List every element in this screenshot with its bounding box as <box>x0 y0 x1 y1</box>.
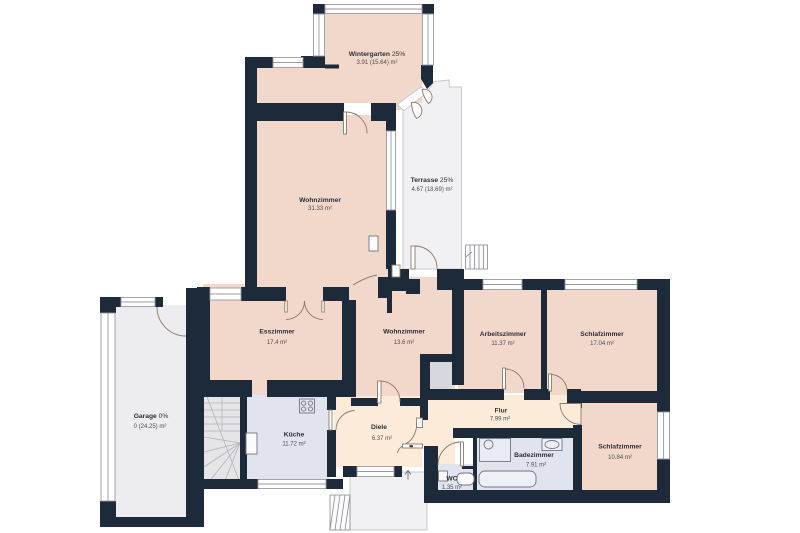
svg-text:Schlafzimmer: Schlafzimmer <box>580 331 624 338</box>
svg-text:Esszimmer: Esszimmer <box>259 329 295 336</box>
svg-text:WC: WC <box>446 476 457 483</box>
svg-text:11.72 m²: 11.72 m² <box>282 442 305 448</box>
svg-text:Terrasse 25%: Terrasse 25% <box>411 177 454 184</box>
svg-text:13.6 m²: 13.6 m² <box>394 340 414 346</box>
svg-text:Wintergarten 25%: Wintergarten 25% <box>349 51 405 58</box>
svg-text:Garage 0%: Garage 0% <box>134 413 169 420</box>
svg-text:Wohnzimmer: Wohnzimmer <box>299 197 341 204</box>
svg-text:Küche: Küche <box>284 432 305 439</box>
svg-text:7.99 m²: 7.99 m² <box>490 417 510 423</box>
svg-text:1.35 m²: 1.35 m² <box>442 485 462 491</box>
svg-text:Badezimmer: Badezimmer <box>514 452 554 459</box>
svg-text:11.37 m²: 11.37 m² <box>491 341 514 347</box>
svg-text:31.33 m²: 31.33 m² <box>308 206 332 212</box>
svg-text:3.91 (15.64) m²: 3.91 (15.64) m² <box>356 60 397 66</box>
svg-text:7.91 m²: 7.91 m² <box>526 463 546 469</box>
svg-text:17.04 m²: 17.04 m² <box>590 341 614 347</box>
svg-text:10.84 m²: 10.84 m² <box>608 455 632 461</box>
svg-text:Flur: Flur <box>495 408 508 415</box>
svg-text:4.67 (18.69) m²: 4.67 (18.69) m² <box>411 187 452 193</box>
svg-text:Schlafzimmer: Schlafzimmer <box>598 444 642 451</box>
svg-text:6.37 m²: 6.37 m² <box>372 436 392 442</box>
svg-text:Arbeitszimmer: Arbeitszimmer <box>480 331 527 338</box>
svg-text:Diele: Diele <box>371 424 387 431</box>
svg-text:0 (24.25) m²: 0 (24.25) m² <box>134 424 167 430</box>
svg-text:17.4 m²: 17.4 m² <box>267 340 287 346</box>
svg-text:Wohnzimmer: Wohnzimmer <box>383 329 425 336</box>
